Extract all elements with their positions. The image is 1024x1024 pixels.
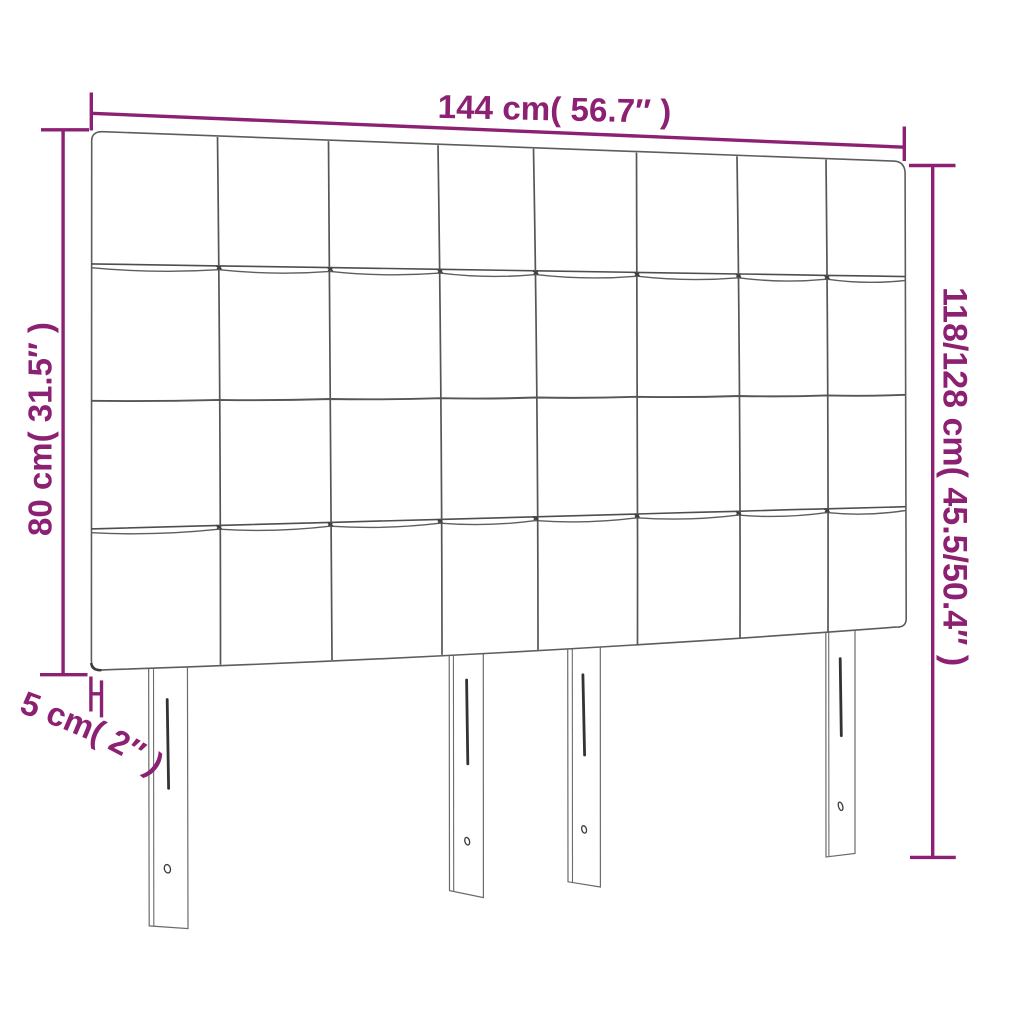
svg-text:80 cm( 31.5″ ): 80 cm( 31.5″ )	[22, 322, 59, 536]
svg-text:118/128 cm( 45.5/50.4″ ): 118/128 cm( 45.5/50.4″ )	[936, 287, 974, 666]
svg-text:144 cm( 56.7″ ): 144 cm( 56.7″ )	[437, 89, 671, 131]
